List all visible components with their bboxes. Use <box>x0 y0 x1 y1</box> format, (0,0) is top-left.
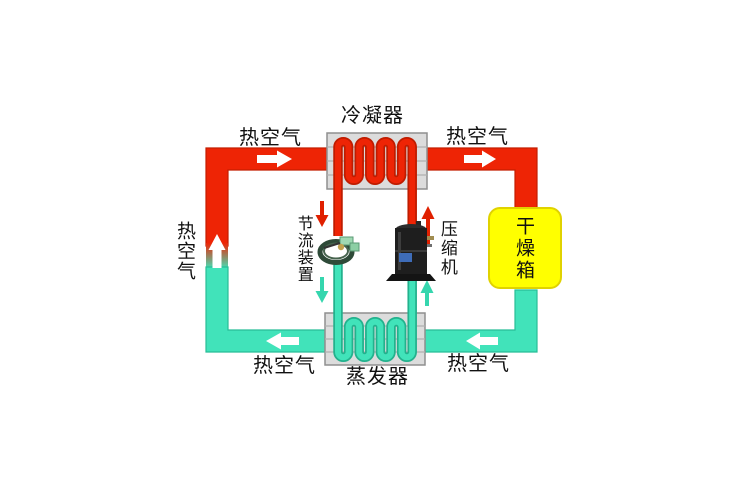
hot-air-label-left-riser: 热空气 <box>174 221 194 281</box>
drying-box-label: 干燥箱 <box>513 216 533 282</box>
hot-air-label-bottom-right: 热空气 <box>447 354 510 375</box>
hot-air-label-top-right: 热空气 <box>446 127 509 148</box>
hot-air-label-top-left: 热空气 <box>239 128 302 149</box>
compressor-nameplate <box>399 253 412 262</box>
evaporator-label: 蒸发器 <box>346 367 409 388</box>
compressor-discharge-pipe <box>427 236 434 240</box>
heat-pump-dryer-diagram: 热空气 冷凝器 热空气 热空气 节流装置 压缩机 干燥箱 蒸发器 热空气 热空气 <box>0 0 750 500</box>
capillary-coil-inner <box>324 244 348 259</box>
refrigerant-arrow-down-icon <box>316 201 329 227</box>
compressor-label: 压缩机 <box>438 220 456 277</box>
brass-fitting <box>338 244 344 250</box>
hot-air-label-bottom-left: 热空气 <box>253 356 316 377</box>
valve-fitting <box>350 243 359 251</box>
compressor-base <box>386 274 436 281</box>
throttle-device <box>320 237 359 263</box>
diagram-canvas <box>0 0 750 500</box>
refrigerant-arrow-up-icon <box>421 280 434 306</box>
compressor-highlight <box>398 232 401 270</box>
condenser-label: 冷凝器 <box>341 106 404 127</box>
throttle-device-label: 节流装置 <box>294 215 311 283</box>
compressor-suction-pipe <box>427 244 432 247</box>
refrigerant-arrow-down-icon <box>316 277 329 303</box>
